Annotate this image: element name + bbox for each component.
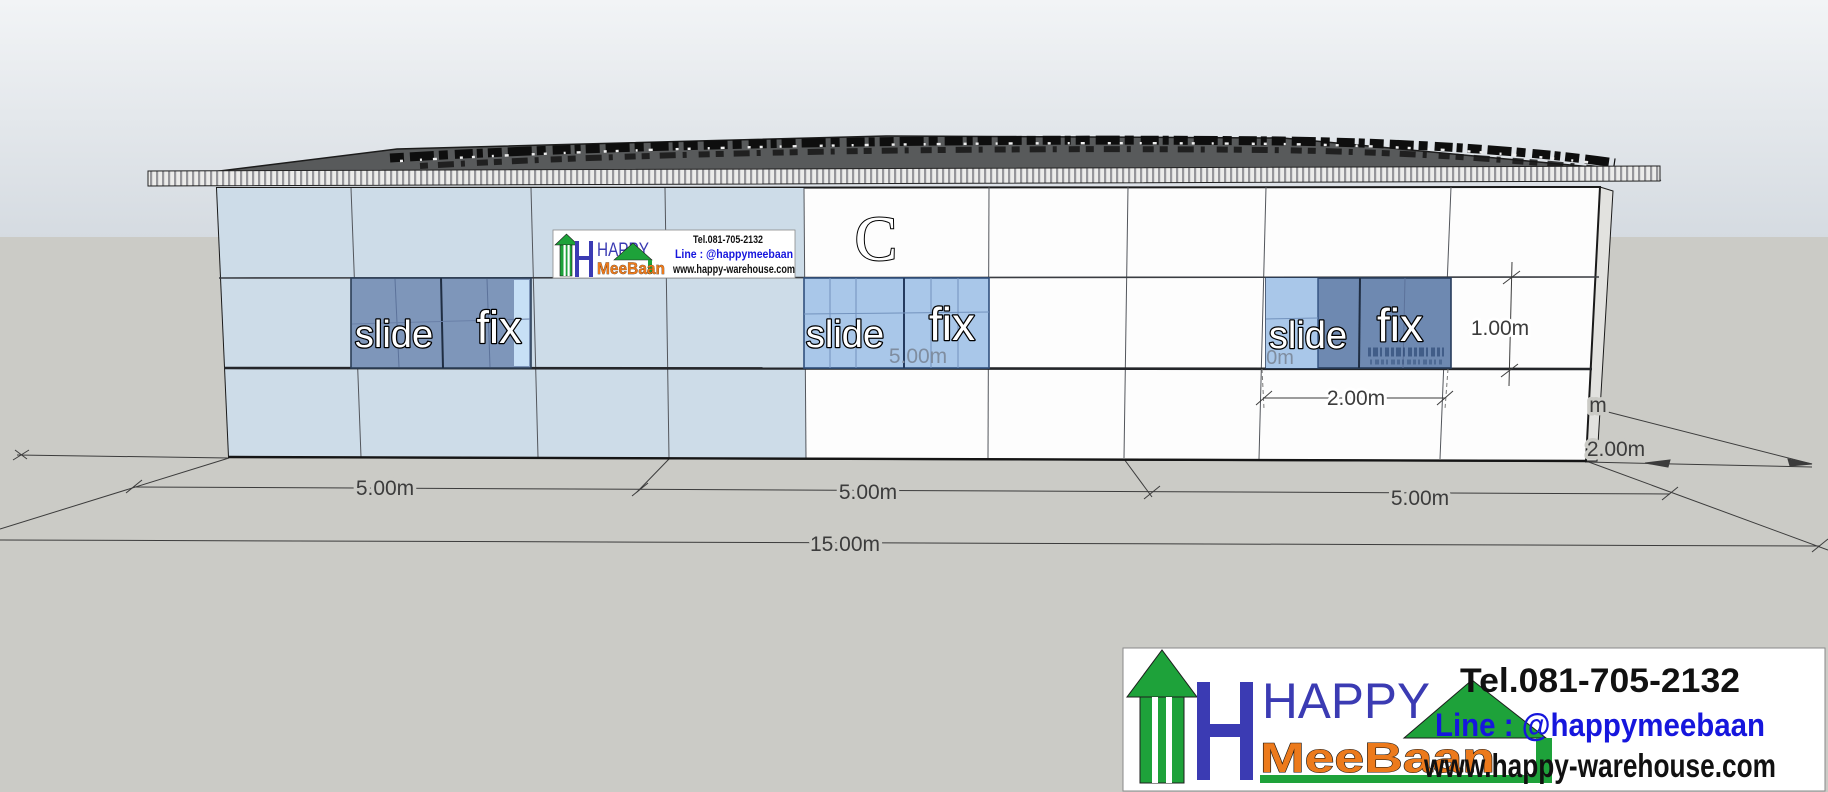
window-right: 0m slide fix xyxy=(1266,278,1451,369)
window-middle: slide fix 5.00m xyxy=(804,278,989,368)
viewport: slide fix slide fix 5.00m xyxy=(0,0,1828,792)
dim-bay2: 5.00m xyxy=(839,481,897,504)
banner-tel-text: Tel.081-705-2132 xyxy=(693,234,763,246)
window-right-slide-label: slide xyxy=(1269,315,1347,357)
window-right-fix-label: fix xyxy=(1377,299,1423,351)
banner-web-text: www.happy-warehouse.com xyxy=(672,262,795,276)
window-left: slide fix xyxy=(351,278,531,368)
dim-window-width: 2.00m xyxy=(1327,387,1385,410)
banner-line-text: Line : @happymeebaan xyxy=(675,249,793,261)
dim-side-depth: 2.00m xyxy=(1587,438,1645,461)
window-middle-width-note: 5.00m xyxy=(889,345,947,368)
facade-banner: HAPPY MeeBaan Tel.081-705-2132 Line : @h… xyxy=(553,230,795,278)
logo-happy-text: HAPPY xyxy=(1262,673,1430,729)
window-left-fix-label: fix xyxy=(477,302,523,353)
window-left-slide-label: slide xyxy=(355,314,433,356)
dim-bay3: 5.00m xyxy=(1391,487,1449,510)
panel-letter-c: C xyxy=(855,203,898,274)
logo-tel-text: Tel.081-705-2132 xyxy=(1460,662,1740,700)
dim-window-height: 1.00m xyxy=(1471,317,1529,340)
dim-total: 15.00m xyxy=(810,533,880,556)
dim-side-partial: m xyxy=(1589,394,1607,417)
window-middle-slide-label: slide xyxy=(806,314,884,356)
logo-web-text: www.happy-warehouse.com xyxy=(1423,747,1776,784)
banner-meebaan-text: MeeBaan xyxy=(597,259,665,278)
dim-bay1: 5.00m xyxy=(356,477,414,500)
logo-line-text: Line : @happymeebaan xyxy=(1435,707,1765,743)
corner-logo: HAPPY MeeBaan Tel.081-705-2132 Line : @h… xyxy=(1123,648,1825,791)
facade-banner-logo: HAPPY MeeBaan xyxy=(555,234,665,278)
scene-canvas: slide fix slide fix 5.00m xyxy=(0,0,1828,792)
window-middle-fix-label: fix xyxy=(929,298,975,350)
